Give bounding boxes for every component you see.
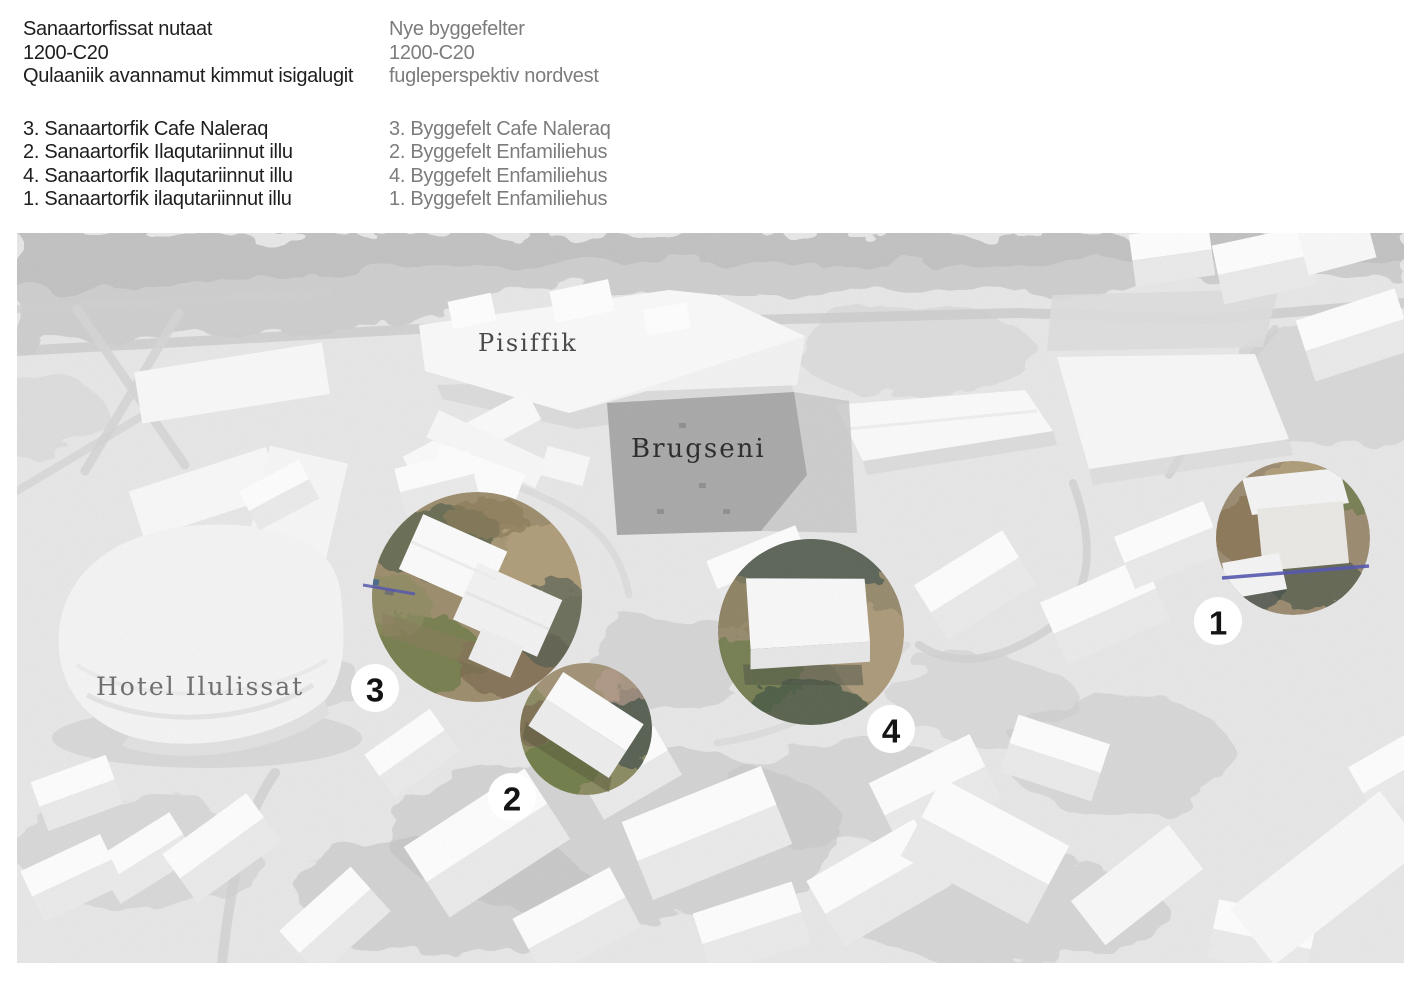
site-list-item: 1. Sanaartorfik ilaqutariinnut illu	[23, 188, 353, 212]
subtitle-greenlandic: Qulaaniik avannamut kimmut isigalugit	[23, 65, 353, 89]
site-list-item: 3. Byggefelt Cafe Naleraq	[389, 118, 611, 142]
site-marker-number: 4	[882, 713, 901, 750]
site-list-danish: 3. Byggefelt Cafe Naleraq 2. Byggefelt E…	[389, 118, 611, 212]
photo-grain-overlay	[17, 233, 1404, 963]
plan-code-right: 1200-C20	[389, 42, 611, 66]
plan-code-left: 1200-C20	[23, 42, 353, 66]
site-marker-3: 3	[351, 664, 399, 712]
header-column-greenlandic: Sanaartorfissat nutaat 1200-C20 Qulaanii…	[23, 18, 353, 212]
site-marker-number: 3	[366, 672, 384, 709]
site-marker-4: 4	[867, 705, 915, 753]
site-list-greenlandic: 3. Sanaartorfik Cafe Naleraq 2. Sanaarto…	[23, 118, 353, 212]
site-list-item: 1. Byggefelt Enfamiliehus	[389, 188, 611, 212]
site-marker-number: 2	[503, 781, 521, 818]
site-marker-1: 1	[1194, 597, 1242, 645]
subtitle-danish: fugleperspektiv nordvest	[389, 65, 611, 89]
aerial-render-canvas: Pisiffik Brugseni Hotel Ilulissat 3 2 4 …	[17, 233, 1404, 963]
site-marker-number: 1	[1209, 605, 1227, 642]
site-list-item: 2. Sanaartorfik Ilaqutariinnut illu	[23, 141, 353, 165]
site-list-item: 2. Byggefelt Enfamiliehus	[389, 141, 611, 165]
header-column-danish: Nye byggefelter 1200-C20 fugleperspektiv…	[389, 18, 611, 212]
title-greenlandic: Sanaartorfissat nutaat	[23, 18, 353, 42]
site-list-item: 4. Sanaartorfik Ilaqutariinnut illu	[23, 165, 353, 189]
site-list-item: 3. Sanaartorfik Cafe Naleraq	[23, 118, 353, 142]
map-label-hotel-ilulissat: Hotel Ilulissat	[96, 672, 304, 701]
map-label-pisiffik: Pisiffik	[478, 329, 578, 357]
title-danish: Nye byggefelter	[389, 18, 611, 42]
site-list-item: 4. Byggefelt Enfamiliehus	[389, 165, 611, 189]
site-marker-2: 2	[488, 773, 536, 821]
aerial-perspective-map: Pisiffik Brugseni Hotel Ilulissat 3 2 4 …	[17, 233, 1404, 963]
map-label-brugseni: Brugseni	[631, 434, 766, 464]
